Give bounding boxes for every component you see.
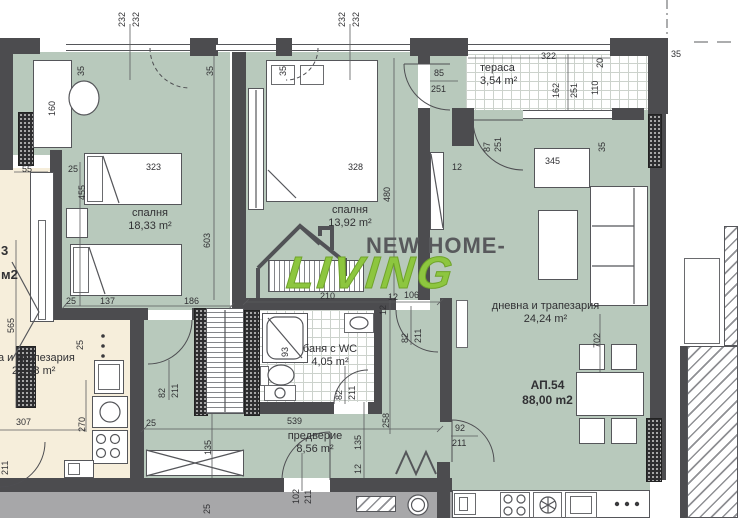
room-name: предверие [270,430,360,443]
chair-icon [69,81,99,115]
window-swing-arc [150,48,190,88]
dimension-label: 232 [117,12,127,27]
dimension-label: 328 [348,162,363,172]
dimension-label: 251 [569,83,579,98]
dimension-label: 35 [671,49,681,59]
bed-fold-line [89,247,105,294]
window-swing-arc [286,48,318,80]
room-area: 21,98 m² [0,365,116,378]
dimension-label: 25 [75,340,85,350]
room-name: дневна и трапезария [478,300,613,313]
room-label-bathroom: баня с WC 4,05 m² [285,343,375,369]
dimension-label: 135 [353,435,363,450]
sliding-door-line [431,154,443,228]
bed-fold-line [268,170,296,198]
room-name: баня с WC [285,343,375,356]
dimension-label: 307 [16,417,31,427]
boundary-lines [667,0,738,42]
room-label-hall: предверие 8,56 m² [270,430,360,456]
dimension-label: 25 [66,296,76,306]
dimension-label: 35 [205,66,215,76]
washbasin-bowl [350,317,368,329]
dimension-label: 102 [291,489,301,504]
dimension-label: 211 [347,386,357,400]
dimension-label: 345 [545,156,560,166]
dimension-label: 162 [551,83,561,98]
dimension-label: 137 [100,296,115,306]
door-arc [148,320,192,364]
apartment-number: АП.54 [505,378,590,393]
dimension-label: 25 [202,504,212,514]
room-name: спалня [295,204,405,217]
dimension-label: 160 [47,101,57,116]
dimension-label: 92 [455,423,465,433]
dimension-label: 3 [1,246,8,256]
room-name: а и трапезария [0,352,116,365]
watermark-brand-line2: LIVING [284,247,457,299]
room-label-neighbor: а и трапезария 21,98 m² [0,352,116,378]
dimension-label: 232 [337,12,347,27]
dimension-label: 251 [493,137,503,152]
dimension-label: 110 [590,81,600,95]
dimension-label: 82 [334,390,344,400]
dimension-label: 12 [452,162,462,172]
room-name: спалня [95,207,205,220]
apartment-area: 88,00 m2 [505,393,590,408]
room-label-bedroom-1: спалня 18,33 m² [95,207,205,233]
room-area: 8,56 m² [270,443,360,456]
dimension-label: 87 [482,142,492,152]
dimension-label: 35 [597,142,607,152]
dimension-label: 25 [146,418,156,428]
dimension-label: 20 [595,58,605,68]
room-area: 4,05 m² [285,356,375,369]
room-label-bedroom-2: спалня 13,92 m² [295,204,405,230]
apartment-label: АП.54 88,00 m2 [505,378,590,408]
sink-bowl [100,402,120,422]
dimension-label: 251 [431,84,446,94]
dimension-label: 82 [157,388,167,398]
dimension-label: 565 [6,318,16,333]
dimension-label: 455 [77,185,87,200]
room-name: тераса [480,62,550,75]
dimension-label: 211 [413,329,423,343]
dimension-label: 12 [378,305,388,315]
dimension-label: 82 [400,333,410,343]
floor-plan: спалня 18,33 m² спалня 13,92 m² дневна и… [0,0,738,518]
dimension-label: 480 [382,187,392,202]
dimension-label: 323 [146,162,161,172]
dimension-label: 211 [170,384,180,398]
dimension-label: 322 [541,51,556,61]
dimension-label: 211 [303,490,313,504]
dimension-label: 211 [452,438,466,448]
electric-panel-zigzag [396,452,436,474]
room-label-living: дневна и трапезария 24,24 m² [478,300,613,326]
dimension-label: 93 [280,347,290,357]
room-label-terrace: тераса 3,54 m² [480,62,550,88]
dimension-label: 258 [381,413,391,428]
dimension-label: 539 [287,416,302,426]
dimension-label: м2 [1,270,18,280]
dimension-label: 85 [434,68,444,78]
room-area: 24,24 m² [478,313,613,326]
dimension-label: 232 [351,12,361,27]
dimension-label: 270 [77,417,87,432]
dimension-label: 12 [353,464,363,474]
dimension-label: 232 [131,12,141,27]
dimension-label: 55 [22,164,32,174]
dimension-label: 35 [76,66,86,76]
room-area: 18,33 m² [95,220,205,233]
dimension-label: 702 [592,333,602,348]
dimension-label: 211 [0,461,10,475]
dimension-label: 25 [68,164,78,174]
bed-fold-line [103,156,119,203]
dimension-label: 186 [184,296,199,306]
room-area: 3,54 m² [480,75,550,88]
washing-machine-drum [275,388,285,398]
dimension-label: 603 [202,233,212,248]
dimension-label: 135 [203,440,213,455]
room-area: 13,92 m² [295,217,405,230]
dimension-label: 35 [278,66,288,76]
